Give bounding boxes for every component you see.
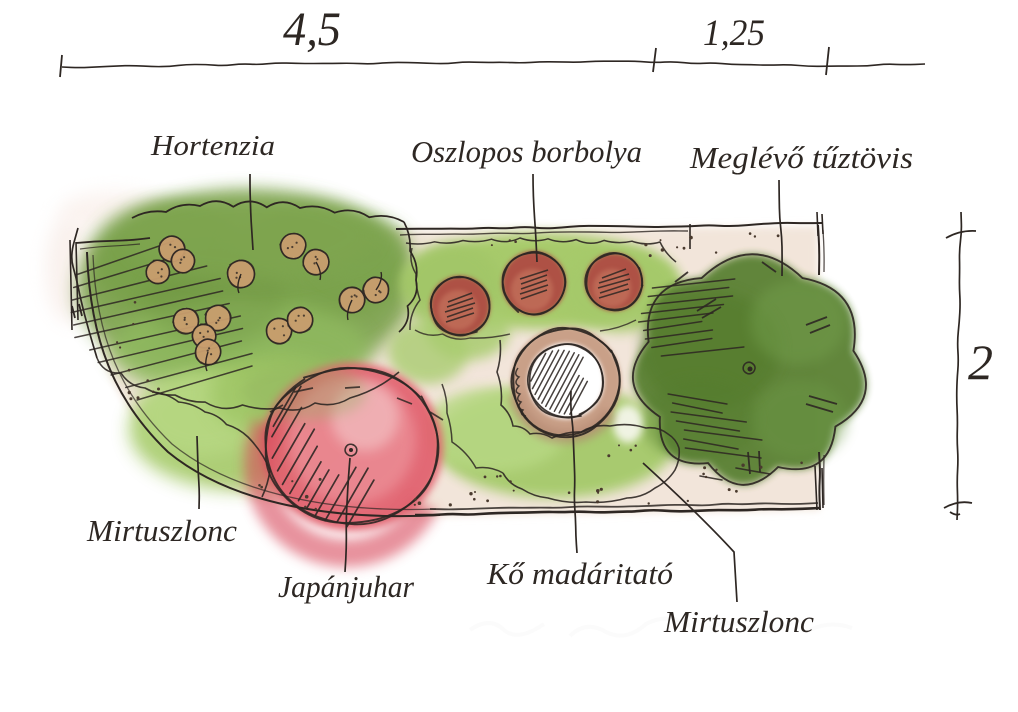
svg-text:Hortenzia: Hortenzia bbox=[150, 130, 275, 162]
svg-text:Japánjuhar: Japánjuhar bbox=[278, 569, 415, 604]
svg-text:Mirtuszlonc: Mirtuszlonc bbox=[663, 604, 814, 639]
svg-text:Meglévő tűztövis: Meglévő tűztövis bbox=[689, 140, 913, 175]
svg-text:Oszlopos borbolya: Oszlopos borbolya bbox=[411, 134, 642, 169]
svg-text:2: 2 bbox=[968, 334, 993, 390]
svg-text:1,25: 1,25 bbox=[703, 13, 765, 54]
svg-text:Mirtuszlonc: Mirtuszlonc bbox=[86, 513, 237, 548]
svg-text:4,5: 4,5 bbox=[283, 3, 341, 56]
svg-text:Kő madáritató: Kő madáritató bbox=[486, 556, 673, 591]
